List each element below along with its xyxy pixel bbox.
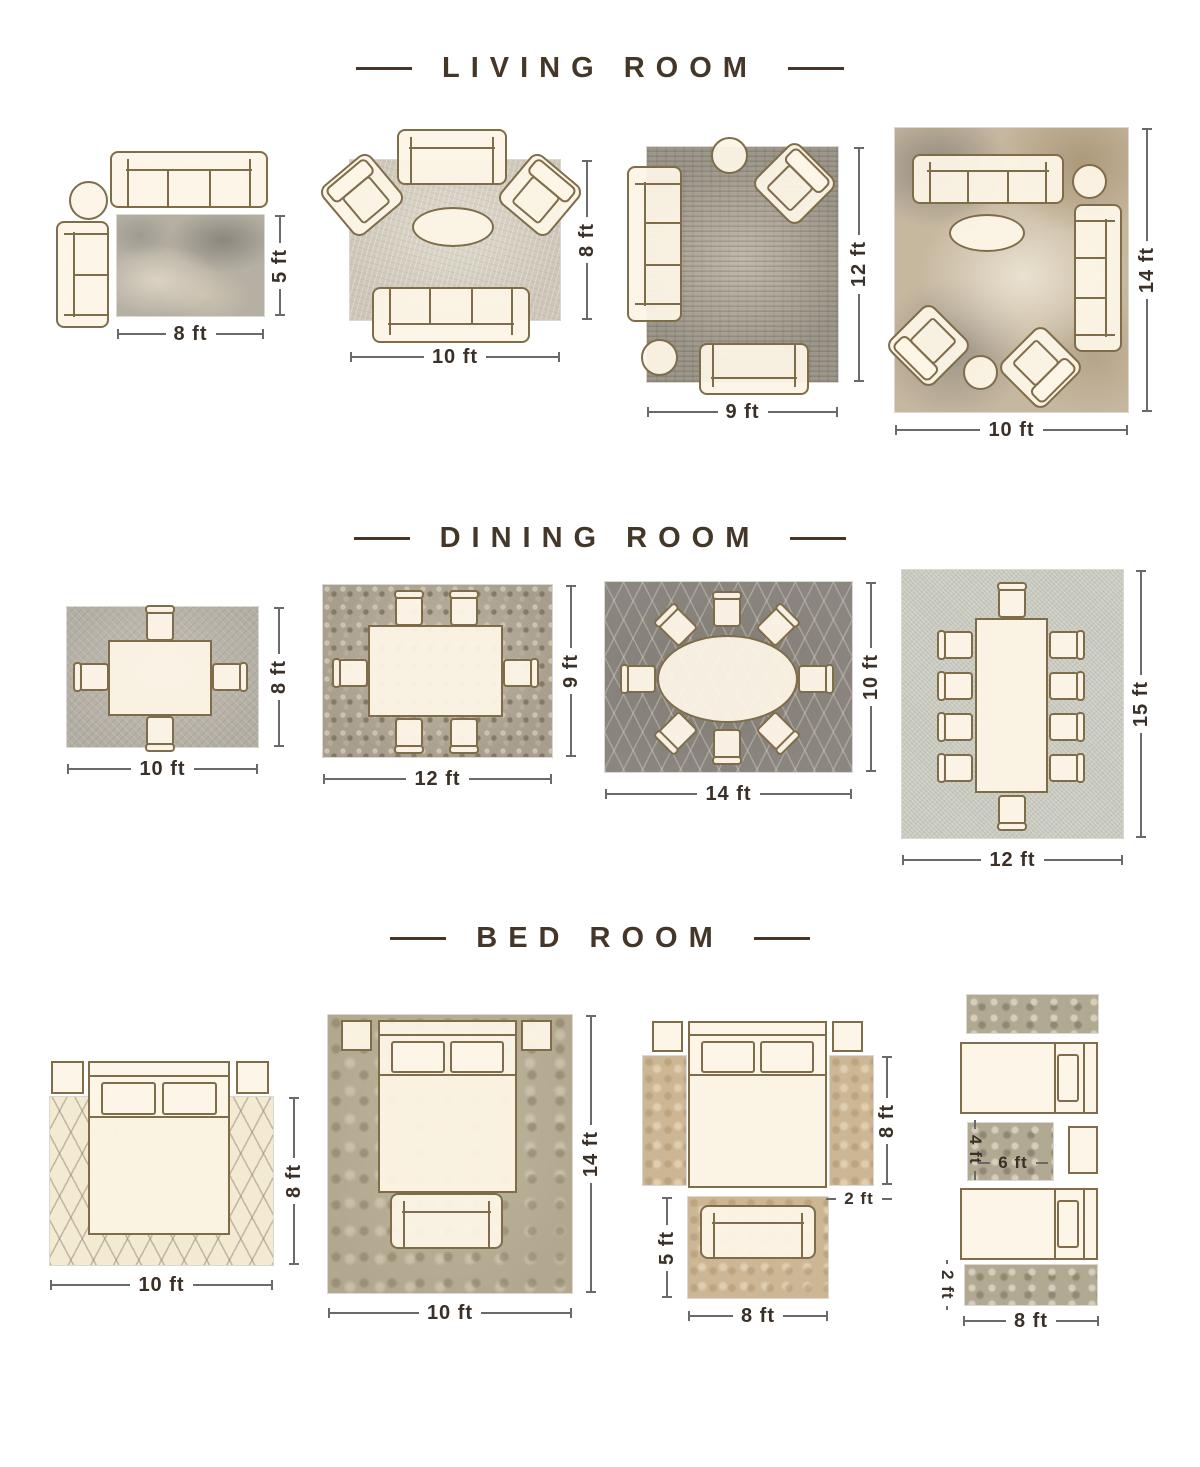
- height-label: 9 ft: [560, 648, 583, 694]
- sofa-3-seat: [912, 154, 1064, 204]
- height-label: 15 ft: [1130, 675, 1153, 733]
- runner-height-dimension: 2 ft: [934, 1260, 960, 1310]
- rug-size-guide: LIVING ROOM 8 ft 5 ft 10 ft: [0, 0, 1200, 1467]
- side-table-round: [711, 137, 748, 174]
- side-table-round: [641, 339, 678, 376]
- dining-chair: [146, 611, 174, 641]
- runner-rug-8x2: [965, 1265, 1097, 1305]
- runner-width-dimension: 2 ft: [826, 1186, 892, 1212]
- twin-bed: [960, 1188, 1098, 1260]
- dining-table: [108, 640, 212, 716]
- width-label: 12 ft: [406, 768, 468, 791]
- height-dimension: 5 ft: [267, 215, 293, 316]
- width-dimension: 10 ft: [328, 1300, 572, 1326]
- width-dimension: 14 ft: [605, 781, 852, 807]
- dining-chair: [1049, 754, 1079, 782]
- dining-chair: [713, 729, 741, 759]
- rug-8x5: [117, 215, 264, 316]
- dining-chair: [395, 718, 423, 748]
- dining-chair: [503, 659, 533, 687]
- sofa-3-seat: [372, 287, 530, 343]
- width-label: 10 ft: [131, 758, 193, 781]
- dining-chair: [1049, 713, 1079, 741]
- bed-queen: [88, 1061, 230, 1235]
- nightstand: [1068, 1126, 1098, 1174]
- loveseat-2-seat: [397, 129, 507, 185]
- dining-chair: [450, 596, 478, 626]
- runner-width-label: 2 ft: [836, 1189, 882, 1209]
- runner-height-label: 8 ft: [876, 1098, 899, 1144]
- title-dash: [790, 537, 846, 540]
- nightstand: [341, 1020, 372, 1051]
- height-dimension: 14 ft: [578, 1015, 604, 1293]
- loveseat-2-seat: [56, 221, 109, 328]
- dining-chair: [146, 716, 174, 746]
- height-dimension: 9 ft: [558, 585, 584, 757]
- dining-chair: [713, 597, 741, 627]
- height-label: 12 ft: [848, 235, 871, 293]
- height-label: 14 ft: [580, 1125, 603, 1183]
- sofa-2-seat: [700, 1205, 816, 1259]
- width-label: 9 ft: [718, 401, 768, 424]
- bed-queen: [688, 1021, 827, 1188]
- section-title-text: LIVING ROOM: [442, 52, 758, 85]
- width-dimension: 8 ft: [963, 1308, 1099, 1334]
- sofa-rug-height-label: 5 ft: [656, 1225, 679, 1271]
- dining-chair: [998, 795, 1026, 825]
- title-dash: [754, 937, 810, 940]
- dining-chair: [998, 588, 1026, 618]
- title-dash: [354, 537, 410, 540]
- section-title-text: BED ROOM: [476, 922, 724, 955]
- bed-queen: [378, 1020, 517, 1193]
- width-dimension: 8 ft: [117, 321, 264, 347]
- width-label: 8 ft: [166, 323, 216, 346]
- dining-table-oval: [657, 635, 798, 723]
- height-dimension: 12 ft: [846, 147, 872, 382]
- coffee-table-oval: [949, 214, 1025, 252]
- title-dash: [356, 67, 412, 70]
- section-title-bed-room: BED ROOM: [0, 922, 1200, 955]
- dining-chair: [943, 754, 973, 782]
- runner-rug-2x8: [830, 1056, 873, 1185]
- nightstand: [521, 1020, 552, 1051]
- twin-bed: [960, 1042, 1098, 1114]
- coffee-table-oval: [412, 207, 494, 247]
- dining-chair: [943, 713, 973, 741]
- bench: [390, 1193, 503, 1249]
- width-dimension: 12 ft: [323, 766, 552, 792]
- dining-chair: [1049, 631, 1079, 659]
- dining-chair: [450, 718, 478, 748]
- height-dimension: 15 ft: [1128, 570, 1154, 838]
- side-table-round: [963, 355, 998, 390]
- width-label: 12 ft: [981, 849, 1043, 872]
- dining-chair: [943, 631, 973, 659]
- section-title-living-room: LIVING ROOM: [0, 52, 1200, 85]
- height-label: 8 ft: [283, 1158, 306, 1204]
- sofa-3-seat: [110, 151, 268, 208]
- height-label: 8 ft: [576, 217, 599, 263]
- height-dimension: 8 ft: [266, 607, 292, 747]
- runner-rug-2x8: [643, 1056, 686, 1185]
- small-rug-width-label: 6 ft: [990, 1153, 1036, 1173]
- height-label: 10 ft: [860, 648, 883, 706]
- width-label: 10 ft: [419, 1302, 481, 1325]
- dining-chair: [1049, 672, 1079, 700]
- dining-chair: [212, 663, 242, 691]
- height-label: 14 ft: [1136, 241, 1159, 299]
- height-dimension: 8 ft: [281, 1097, 307, 1265]
- dining-chair: [626, 665, 656, 693]
- dining-chair: [338, 659, 368, 687]
- width-label: 10 ft: [980, 419, 1042, 442]
- title-dash: [390, 937, 446, 940]
- width-dimension: 10 ft: [50, 1272, 273, 1298]
- width-dimension: 10 ft: [67, 756, 258, 782]
- dining-chair: [798, 665, 828, 693]
- runner-height-label: 2 ft: [937, 1264, 957, 1306]
- small-rug-width-dimension: 6 ft: [978, 1150, 1048, 1176]
- width-label: 10 ft: [424, 346, 486, 369]
- dining-chair: [79, 663, 109, 691]
- width-dimension: 10 ft: [895, 417, 1128, 443]
- height-label: 5 ft: [269, 243, 292, 289]
- loveseat-2-seat: [699, 343, 809, 395]
- width-label: 10 ft: [130, 1274, 192, 1297]
- width-label: 8 ft: [1006, 1310, 1056, 1333]
- title-dash: [788, 67, 844, 70]
- sofa-3-seat: [1074, 204, 1122, 352]
- sofa-rug-width-label: 8 ft: [733, 1305, 783, 1328]
- sofa-3-seat: [627, 166, 682, 322]
- nightstand: [652, 1021, 683, 1052]
- nightstand: [236, 1061, 269, 1094]
- nightstand: [832, 1021, 863, 1052]
- height-label: 8 ft: [268, 654, 291, 700]
- height-dimension: 10 ft: [858, 582, 884, 772]
- dining-chair: [395, 596, 423, 626]
- width-label: 14 ft: [697, 783, 759, 806]
- runner-height-dimension: 8 ft: [874, 1056, 900, 1185]
- height-dimension: 8 ft: [574, 160, 600, 320]
- section-title-dining-room: DINING ROOM: [0, 522, 1200, 555]
- sofa-rug-height-dimension: 5 ft: [654, 1197, 680, 1298]
- width-dimension: 10 ft: [350, 344, 560, 370]
- runner-rug-8x2: [967, 995, 1098, 1033]
- height-dimension: 14 ft: [1134, 128, 1160, 412]
- nightstand: [51, 1061, 84, 1094]
- side-table-round: [69, 181, 108, 220]
- dining-table: [975, 618, 1048, 793]
- section-title-text: DINING ROOM: [440, 522, 761, 555]
- width-dimension: 9 ft: [647, 399, 838, 425]
- side-table-round: [1072, 164, 1107, 199]
- dining-chair: [943, 672, 973, 700]
- sofa-rug-width-dimension: 8 ft: [688, 1303, 828, 1329]
- width-dimension: 12 ft: [902, 847, 1123, 873]
- dining-table: [368, 625, 503, 717]
